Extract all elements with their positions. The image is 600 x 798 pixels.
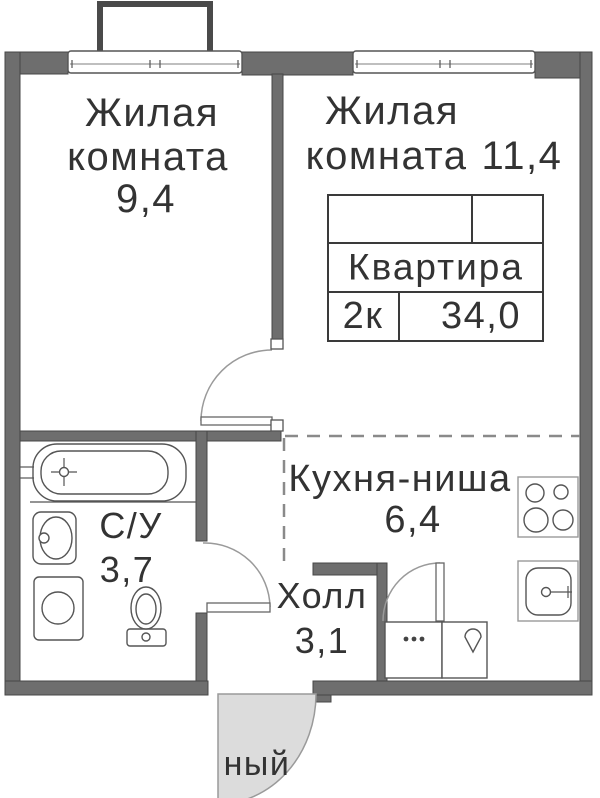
living1-area: 9,4 — [116, 179, 176, 219]
living1-name-line1: Жилая — [85, 93, 219, 133]
window-right — [353, 51, 535, 73]
door-jamb-top — [271, 339, 283, 349]
bathroom-name: С/У — [99, 508, 162, 544]
bathroom-door-swing — [203, 543, 270, 612]
kitchen-name: Кухня-ниша — [288, 460, 511, 498]
info-table-area: 34,0 — [441, 297, 521, 335]
living1-name-line2: комната — [67, 137, 229, 177]
door-jamb-bottom — [271, 420, 283, 431]
cabinet-drop — [442, 622, 487, 678]
window-left — [68, 51, 242, 73]
cabinet-dots — [385, 622, 442, 678]
hall-area: 3,1 — [295, 623, 350, 659]
balcony-outline — [100, 4, 210, 51]
kitchen-area: 6,4 — [384, 501, 441, 539]
living2-name-line2: комната11,4 — [306, 136, 563, 176]
living1-door-swing — [201, 350, 272, 425]
hall-name: Холл — [277, 578, 368, 614]
living2-name-line1: Жилая — [325, 91, 459, 131]
living2-name: комната — [306, 134, 468, 178]
living2-area: 11,4 — [481, 134, 562, 178]
bathroom-area: 3,7 — [100, 552, 155, 588]
kitchen-door-swing — [383, 563, 444, 621]
stove — [518, 477, 578, 537]
info-table-type: 2к — [343, 297, 384, 335]
floor-plan: Жилая комната 9,4 Жилая комната11,4 Квар… — [0, 0, 600, 798]
washing-machine — [34, 577, 83, 640]
clipped-neighbor-label: ный — [224, 747, 291, 781]
bathtub — [20, 444, 196, 502]
bath-sink — [33, 512, 76, 564]
kitchen-sink — [518, 561, 578, 621]
toilet — [127, 587, 166, 646]
info-table-title: Квартира — [348, 249, 524, 286]
